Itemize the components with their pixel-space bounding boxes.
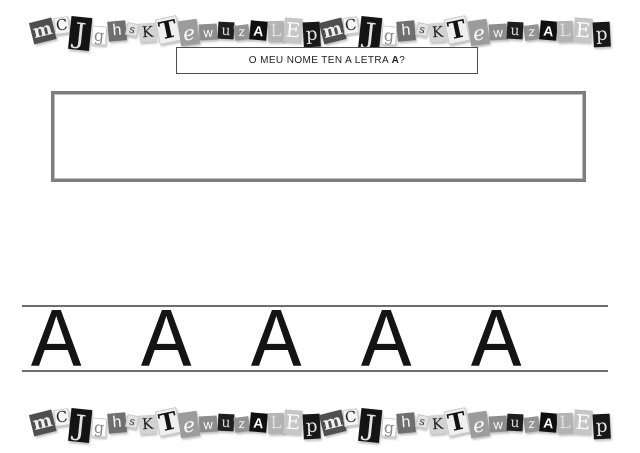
ransom-letter-tile-z: z: [524, 24, 541, 41]
ransom-letter-tile-u: u: [217, 21, 234, 39]
ransom-letter-tile-L: L: [267, 20, 284, 42]
ransom-letter-tile-z: z: [524, 416, 541, 433]
ransom-letter-tile-J: J: [358, 15, 382, 50]
practice-letter-a: A: [251, 303, 301, 387]
ransom-letter-tile-L: L: [557, 412, 574, 434]
ransom-letter-tile-h: h: [107, 412, 127, 433]
ransom-letter-tile-e: e: [468, 18, 490, 45]
ransom-letter-tile-w: w: [199, 24, 218, 41]
ransom-letter-tile-h: h: [107, 20, 127, 41]
ransom-letter-tile-C: C: [53, 408, 70, 427]
ransom-letter-tile-p: p: [592, 21, 610, 47]
ransom-letter-tile-h: h: [397, 20, 417, 41]
ransom-letters-border-bottom: mCJghsKTewuzALEpmCJghsKTewuzALEp: [31, 399, 610, 445]
ransom-letter-tile-e: e: [468, 410, 490, 437]
ransom-letter-tile-T: T: [154, 407, 181, 437]
ransom-letter-tile-A: A: [539, 20, 558, 40]
ransom-letter-tile-g: g: [381, 417, 397, 437]
ransom-letter-tile-g: g: [381, 25, 397, 45]
ransom-letter-tile-E: E: [573, 409, 593, 434]
answer-box: [51, 91, 586, 182]
ransom-letter-tile-p: p: [303, 21, 321, 47]
ransom-letter-tile-E: E: [284, 17, 304, 42]
ransom-letter-tile-C: C: [53, 16, 70, 35]
ransom-letter-tile-J: J: [68, 15, 92, 50]
ransom-letter-tile-e: e: [178, 18, 200, 45]
practice-letter-row: AAAAA: [0, 303, 640, 387]
ransom-letter-tile-E: E: [573, 17, 593, 42]
ransom-letter-tile-s: s: [415, 21, 429, 36]
ransom-letter-tile-u: u: [507, 413, 524, 431]
ransom-letter-tile-e: e: [178, 410, 200, 437]
ransom-letter-tile-u: u: [217, 413, 234, 431]
practice-letter-a: A: [471, 303, 521, 387]
ransom-letter-tile-E: E: [284, 409, 304, 434]
ransom-letter-tile-w: w: [488, 416, 507, 433]
ransom-letter-tile-K: K: [139, 22, 157, 42]
question-mark: ?: [399, 55, 405, 66]
ransom-letter-tile-A: A: [539, 412, 558, 432]
ransom-letter-tile-s: s: [415, 413, 429, 428]
ransom-letter-tile-m: m: [29, 410, 57, 437]
ransom-letter-tile-g: g: [91, 417, 107, 437]
ransom-letter-tile-T: T: [444, 407, 471, 437]
ransom-letter-tile-p: p: [592, 413, 610, 439]
ransom-letter-tile-A: A: [249, 412, 268, 432]
ransom-letter-tile-L: L: [267, 412, 284, 434]
ransom-letter-tile-p: p: [303, 413, 321, 439]
ransom-letter-tile-z: z: [234, 416, 251, 433]
ransom-letter-tile-w: w: [199, 416, 218, 433]
ransom-letter-tile-u: u: [507, 21, 524, 39]
ransom-letter-tile-T: T: [154, 15, 181, 45]
ransom-letter-tile-z: z: [234, 24, 251, 41]
ransom-letter-tile-w: w: [488, 24, 507, 41]
question-box: O MEU NOME TEN A LETRA A?: [176, 47, 478, 74]
ransom-letter-tile-K: K: [139, 414, 157, 434]
worksheet-page: mCJghsKTewuzALEpmCJghsKTewuzALEp O MEU N…: [0, 0, 640, 453]
ransom-letter-tile-A: A: [249, 20, 268, 40]
ransom-letter-tile-L: L: [557, 20, 574, 42]
ransom-letter-tile-C: C: [343, 408, 360, 427]
question-text: O MEU NOME TEN A LETRA: [249, 55, 392, 66]
ransom-letter-tile-h: h: [397, 412, 417, 433]
ransom-letter-tile-m: m: [29, 18, 57, 45]
ransom-letter-tile-J: J: [358, 407, 382, 442]
practice-letter-a: A: [31, 303, 81, 387]
practice-letter-a: A: [361, 303, 411, 387]
practice-letter-a: A: [141, 303, 191, 387]
ransom-letter-tile-J: J: [68, 407, 92, 442]
ransom-letter-tile-g: g: [91, 25, 107, 45]
ransom-letter-tile-T: T: [444, 15, 471, 45]
ransom-letter-tile-C: C: [343, 16, 360, 35]
question-bold-letter: A: [392, 55, 400, 66]
